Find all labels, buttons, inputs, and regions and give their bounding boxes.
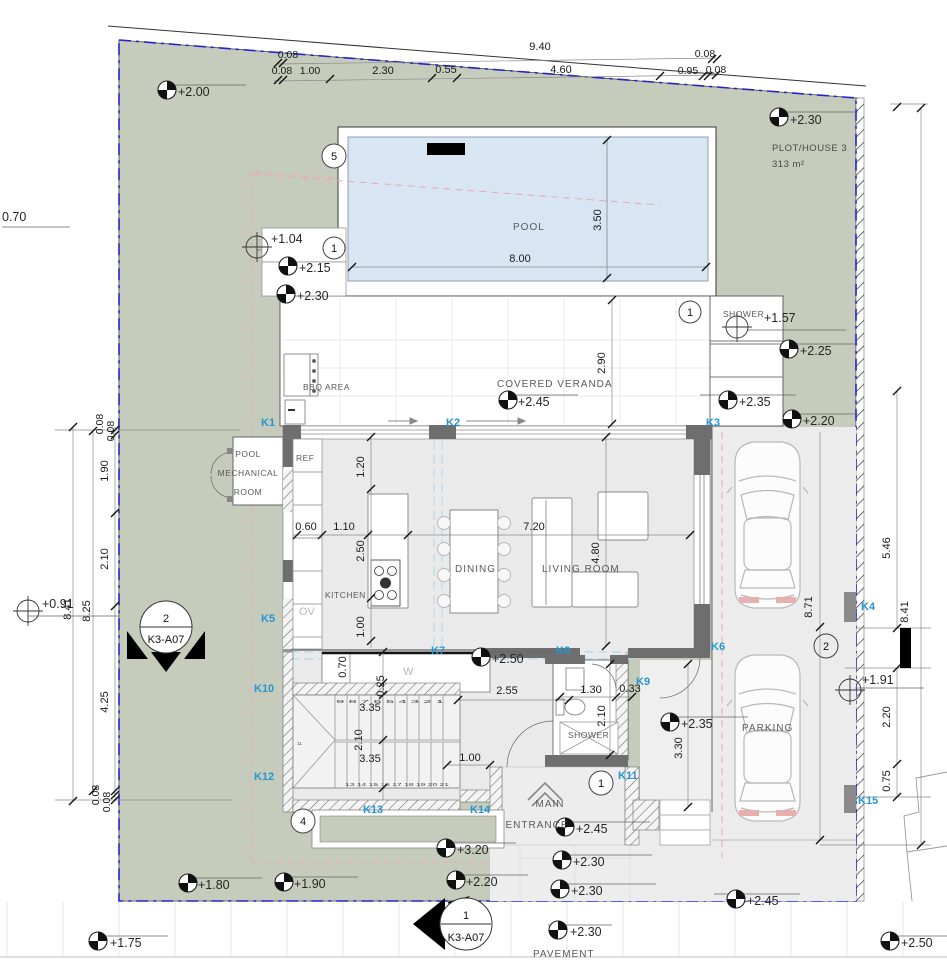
- pool-cover-marker: [427, 143, 465, 155]
- section-sheet: K3-A07: [448, 932, 485, 944]
- appliance-label-oven: OV: [299, 606, 316, 618]
- axis-label-k13: K13: [363, 804, 383, 816]
- dim-label: 0.08: [695, 48, 716, 60]
- room-label-pool-mech-1: POOL: [235, 449, 261, 459]
- spot-level: +2.45: [747, 894, 779, 908]
- dim-label: 2.90: [596, 352, 608, 373]
- callout-5: 5: [331, 151, 337, 163]
- spot-level: +2.15: [299, 261, 331, 275]
- spot-level: +0.91: [42, 597, 74, 611]
- wc-room: [545, 655, 628, 767]
- axis-block-k15: [844, 785, 856, 813]
- room-label-pool-mech-2: MECHANICAL: [218, 468, 279, 478]
- callout-4: 4: [300, 816, 306, 828]
- plot-title: PLOT/HOUSE 3: [772, 143, 847, 154]
- spot-level: +2.20: [466, 875, 498, 889]
- dim-label: 1.90: [99, 460, 111, 481]
- dim-label: 4.80: [590, 542, 602, 563]
- dim-label: 0.08: [706, 64, 727, 76]
- axis-label-k4: K4: [861, 601, 876, 613]
- dim-label: 0.08: [101, 792, 113, 813]
- dim-label: 0.70: [337, 656, 349, 677]
- room-label-kitchen: KITCHEN: [325, 590, 366, 600]
- section-sheet: K3-A07: [148, 634, 185, 646]
- room-label-bbq: BBQ AREA: [303, 382, 350, 392]
- appliance-label-washer: W: [403, 666, 414, 678]
- spot-level: +2.25: [800, 344, 832, 358]
- dim-label: 0.25: [375, 675, 387, 696]
- spot-level: +2.50: [901, 936, 933, 950]
- spot-level: 0.70: [2, 210, 26, 224]
- axis-label-k11: K11: [618, 770, 638, 782]
- dim-label: 3.35: [359, 702, 380, 714]
- room-label-parking: PARKING: [742, 723, 793, 734]
- spot-level: +1.04: [271, 232, 303, 246]
- dim-label: 4.60: [550, 64, 571, 76]
- axis-label-k8: K8: [556, 645, 570, 657]
- spot-level: +1.91: [862, 673, 894, 687]
- spot-level: +2.45: [576, 822, 608, 836]
- callout-1: 1: [598, 778, 604, 790]
- spot-level: +3.20: [457, 843, 489, 857]
- room-label-main-entrance-2: ENTRANCE: [505, 820, 568, 831]
- dim-label: 3.50: [592, 209, 604, 230]
- plot-area-label: 313 m²: [772, 159, 805, 170]
- axis-label-k6: K6: [711, 641, 725, 653]
- room-label-pool-mech-3: ROOM: [234, 487, 262, 497]
- stair-step-number-winder: 11: [297, 741, 302, 746]
- dim-label: 1.20: [355, 456, 367, 477]
- room-label-veranda: COVERED VERANDA: [497, 379, 613, 390]
- car-1: [727, 442, 808, 608]
- dim-label: 0.60: [295, 521, 316, 533]
- boundary-hatch: [856, 98, 864, 901]
- dim-label: 2.20: [881, 706, 893, 727]
- dim-label: 2.30: [372, 65, 393, 77]
- axis-label-k1: K1: [261, 417, 275, 429]
- entrance-steps: [660, 800, 710, 845]
- dim-label: 0.95: [678, 65, 699, 77]
- spot-level: +2.00: [178, 85, 210, 99]
- spot-level: +2.30: [573, 855, 605, 869]
- dim-label: 2.55: [496, 685, 517, 697]
- spot-level: +2.35: [739, 395, 771, 409]
- room-label-dining: DINING: [455, 564, 496, 575]
- car-2: [727, 655, 808, 821]
- dim-label: 0.55: [435, 64, 456, 76]
- spot-level: +2.35: [681, 717, 713, 731]
- room-label-living: LIVING ROOM: [542, 564, 620, 575]
- spot-level: +2.30: [570, 925, 602, 939]
- stair-step-numbers-bottom: 13 14 15 16 17 18 19 20 21: [345, 782, 450, 787]
- axis-label-k15: K15: [858, 795, 878, 807]
- section-number: 1: [463, 910, 469, 922]
- neighbor-outline: [904, 772, 947, 901]
- axis-label-k14: K14: [470, 804, 491, 816]
- spot-level: +1.80: [198, 878, 230, 892]
- floor-plan-canvas: 9 8 7 6 5 4 3 2 1 11 13 14 15 16 17 18 1…: [0, 0, 947, 962]
- dim-label: 2.10: [596, 705, 608, 726]
- stair-step-numbers-top: 9 8 7 6 5 4 3 2 1: [336, 699, 445, 704]
- dim-label: 4.25: [99, 691, 111, 712]
- dim-label: 5.46: [881, 537, 893, 558]
- room-label-main-entrance-1: MAIN: [536, 799, 565, 810]
- spot-level: +1.75: [110, 936, 142, 950]
- axis-label-k2: K2: [446, 417, 460, 429]
- dim-label: 1.00: [300, 65, 321, 77]
- dim-label: 8.71: [803, 596, 815, 617]
- spot-level: +2.30: [297, 289, 329, 303]
- dim-label: 8.41: [899, 601, 911, 622]
- axis-label-k10: K10: [254, 683, 274, 695]
- axis-label-k12: K12: [254, 771, 274, 783]
- dim-label: 0.08: [272, 65, 293, 77]
- dim-label: 0.08: [105, 421, 117, 442]
- room-label-pool: POOL: [513, 222, 545, 233]
- dim-label: 1.30: [580, 684, 601, 696]
- appliance-label-fridge: REF: [296, 453, 315, 463]
- callout-1: 1: [331, 243, 337, 255]
- dim-label: 1.00: [459, 752, 480, 764]
- dim-label: 9.40: [529, 41, 550, 53]
- spot-level: +2.30: [790, 113, 822, 127]
- spot-level: +2.30: [571, 884, 603, 898]
- dim-label: 2.10: [353, 729, 365, 750]
- toilet: [556, 699, 585, 715]
- section-extent-bar: [900, 628, 911, 668]
- room-label-wc-shower: SHOWER: [568, 730, 609, 740]
- dim-label: 3.30: [673, 737, 685, 758]
- dim-label: 8.00: [509, 253, 530, 265]
- floor-plan-drawing: 9 8 7 6 5 4 3 2 1 11 13 14 15 16 17 18 1…: [0, 0, 947, 962]
- area-label-pavement: PAVEMENT: [533, 949, 595, 960]
- axis-label-k9: K9: [636, 676, 650, 688]
- dim-label: 2.10: [99, 548, 111, 569]
- staircase: 9 8 7 6 5 4 3 2 1 11 13 14 15 16 17 18 1…: [293, 683, 460, 788]
- axis-block-k4: [844, 592, 856, 622]
- dim-label: 0.08: [278, 49, 299, 61]
- dim-label: 8.25: [81, 600, 93, 621]
- kitchen-island: [368, 494, 408, 608]
- spot-level: +1.57: [764, 311, 796, 325]
- dim-label: 1.10: [333, 521, 354, 533]
- parking: [712, 427, 856, 901]
- axis-label-k3: K3: [706, 417, 720, 429]
- axis-label-k7: K7: [431, 645, 445, 657]
- dim-label: 1.00: [355, 616, 367, 637]
- room-label-outdoor-shower: SHOWER: [723, 309, 764, 319]
- dim-label: 3.35: [359, 753, 380, 765]
- dim-label: 2.50: [355, 540, 367, 561]
- spot-level: +2.45: [518, 395, 550, 409]
- spot-level: +2.20: [803, 414, 835, 428]
- spot-level: +2.50: [492, 652, 524, 666]
- dim-label: 7.20: [523, 521, 544, 533]
- dim-label: 0.75: [881, 770, 893, 791]
- axis-label-k5: K5: [261, 613, 275, 625]
- callout-1: 1: [687, 307, 693, 319]
- callout-2: 2: [823, 641, 829, 653]
- section-number: 2: [163, 613, 169, 625]
- spot-level: +1.90: [294, 877, 326, 891]
